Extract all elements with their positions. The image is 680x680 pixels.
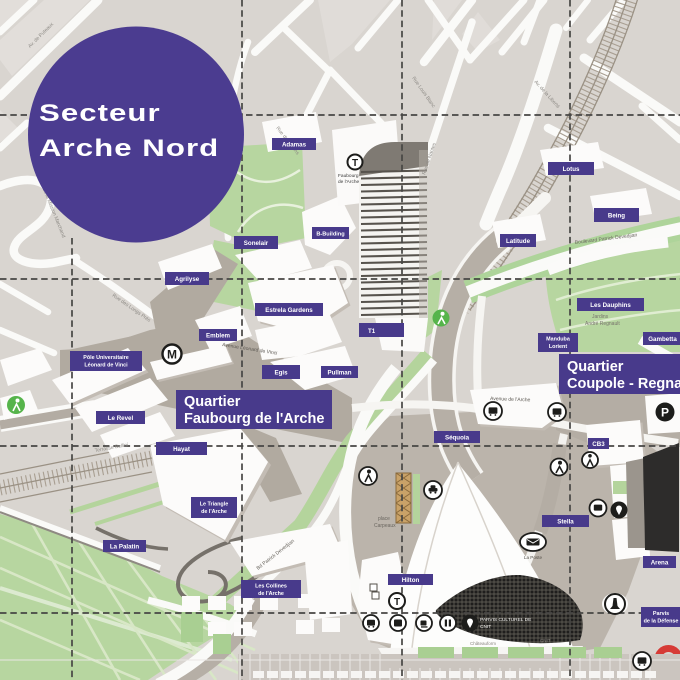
svg-text:Estrela Gardens: Estrela Gardens	[265, 307, 313, 314]
svg-text:B-Building: B-Building	[316, 232, 345, 238]
svg-text:Being: Being	[608, 213, 625, 220]
svg-text:Carpeaux: Carpeaux	[374, 523, 396, 529]
svg-text:Hayat: Hayat	[173, 446, 190, 453]
svg-text:Stella: Stella	[557, 519, 574, 526]
svg-text:Emblem: Emblem	[206, 333, 231, 340]
svg-text:Secteur: Secteur	[39, 99, 161, 126]
svg-text:Manduba: Manduba	[546, 337, 571, 343]
svg-text:de l'Arche: de l'Arche	[258, 591, 284, 597]
svg-text:CNIT: CNIT	[540, 638, 551, 643]
svg-text:Parvis: Parvis	[653, 611, 669, 617]
svg-text:CNIT: CNIT	[480, 624, 491, 630]
svg-text:Les Dauphins: Les Dauphins	[590, 302, 631, 309]
svg-text:Sonelair: Sonelair	[244, 240, 269, 247]
svg-text:Le Triangle: Le Triangle	[200, 502, 228, 508]
svg-text:Léonard de Vinci: Léonard de Vinci	[84, 363, 128, 369]
svg-text:Hilton: Hilton	[402, 577, 420, 584]
svg-text:Coupole - Regnau: Coupole - Regnau	[567, 376, 680, 392]
svg-text:Adamas: Adamas	[282, 142, 307, 149]
svg-text:Séquoia: Séquoia	[445, 435, 470, 442]
svg-text:place: place	[378, 516, 390, 522]
svg-text:Agrilyse: Agrilyse	[175, 276, 200, 283]
svg-text:Quartier: Quartier	[184, 394, 241, 410]
svg-text:Les Collines: Les Collines	[255, 584, 287, 590]
svg-text:P: P	[661, 406, 669, 420]
svg-text:de l'Arche: de l'Arche	[201, 509, 227, 515]
svg-text:Gambetta: Gambetta	[648, 336, 677, 343]
svg-text:CB3: CB3	[592, 441, 605, 448]
svg-text:Arche Nord: Arche Nord	[39, 134, 219, 161]
svg-text:Le Revel: Le Revel	[108, 415, 134, 422]
svg-text:PARVIS CULTUREL DE: PARVIS CULTUREL DE	[480, 617, 531, 623]
svg-text:de l'Arche: de l'Arche	[338, 179, 360, 185]
svg-text:Lotus: Lotus	[563, 166, 580, 173]
svg-text:Lorient: Lorient	[549, 344, 567, 350]
svg-text:Latitude: Latitude	[506, 238, 531, 245]
svg-text:La Poste: La Poste	[524, 555, 543, 560]
svg-text:Pôle Universitaire: Pôle Universitaire	[83, 355, 129, 361]
svg-text:La Palatin: La Palatin	[110, 544, 139, 551]
svg-text:Jardins: Jardins	[592, 314, 609, 320]
svg-text:Quartier: Quartier	[567, 359, 624, 375]
svg-text:T1: T1	[368, 328, 376, 335]
svg-text:de la Défense: de la Défense	[644, 619, 679, 625]
svg-text:Châteauform: Châteauform	[470, 641, 496, 646]
svg-text:Faubourg de l'Arche: Faubourg de l'Arche	[184, 411, 324, 427]
svg-text:M: M	[167, 348, 177, 362]
svg-text:T: T	[352, 158, 358, 169]
svg-text:Arena: Arena	[651, 560, 669, 567]
svg-text:T: T	[394, 597, 400, 608]
svg-text:Egis: Egis	[274, 370, 288, 377]
svg-text:Faubourg: Faubourg	[338, 173, 359, 179]
svg-text:Pullman: Pullman	[327, 370, 351, 377]
svg-text:André Regnault: André Regnault	[585, 321, 620, 327]
